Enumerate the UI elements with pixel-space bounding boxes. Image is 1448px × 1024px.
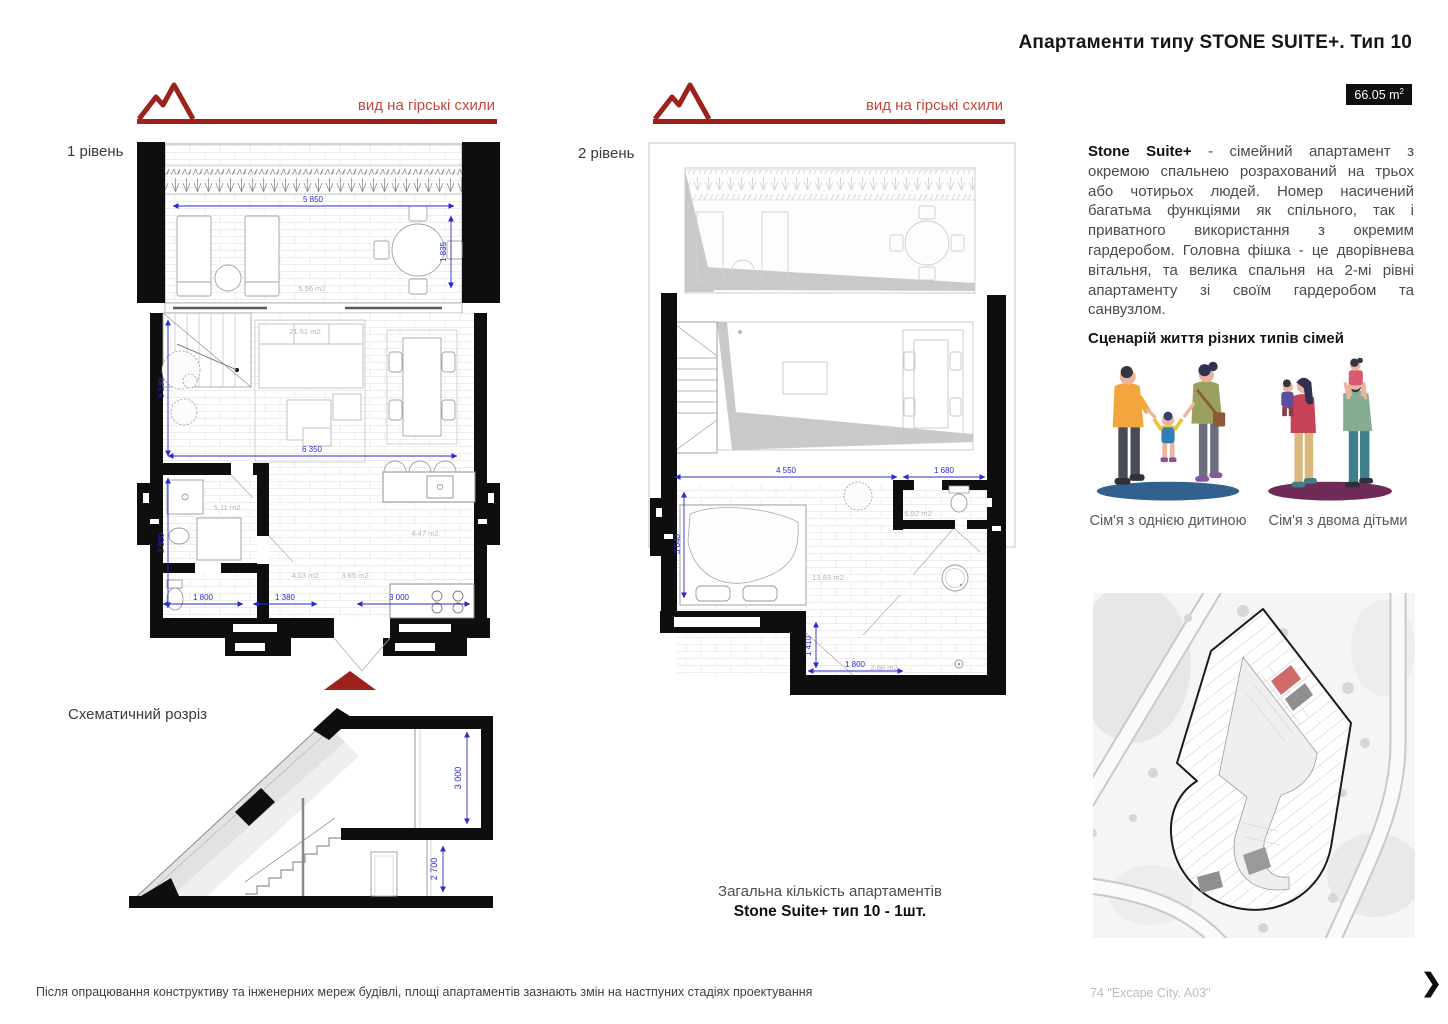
totals: Загальна кількість апартаментів Stone Su… [630,883,1030,921]
level2-label: 2 рівень [578,145,634,162]
dim-bath-height: 2 920 [157,532,166,553]
family-one-child-illustration [1088,358,1248,508]
family-two-children-illustration [1258,358,1403,508]
area-living: 21.61 m2 [289,327,321,336]
view-label: вид на гірські схили [866,97,1003,114]
area-bathroom: 5.11 m2 [214,503,241,512]
dim-kitchen-width: 3 000 [389,593,410,602]
scenario-heading: Сценарій життя різних типів сімей [1088,330,1414,347]
family-illustrations: Сім'я з однією дитиною [1088,358,1418,530]
dim-wc-width: 1 800 [193,593,214,602]
description-body: - сімейний апартамент з окремою спальнею… [1088,143,1414,318]
area-hall: 4.03 m2 [291,571,318,580]
floor-plan-level1: 5 850 1 835 5.56 m2 [137,138,500,673]
totals-line1: Загальна кількість апартаментів [630,883,1030,900]
dim-bedroom-depth: 3 040 [673,533,682,554]
page-title: Апартаменти типу STONE SUITE+. Тип 10 [1018,32,1412,54]
description-lead: Stone Suite+ [1088,143,1192,160]
area-sup: 2 [1400,87,1404,96]
apartment-spec-sheet: Апартаменти типу STONE SUITE+. Тип 10 66… [0,0,1448,1024]
site-map [1093,593,1415,938]
dim-wardrobe-width: 1 680 [934,466,955,475]
family-one-child: Сім'я з однією дитиною [1088,358,1248,530]
next-page-arrow[interactable]: ❯ [1421,968,1442,998]
dim-bath-depth: 1 410 [804,635,813,656]
dim-terrace-width: 5 850 [303,195,324,204]
dim-terrace-depth: 1 835 [439,241,448,262]
family-two-children: Сім'я з двома дітьми [1258,358,1418,530]
view-banner-level1: вид на гірські схили [137,84,497,124]
mountain-icon [651,82,713,122]
dim-hall-width: 1 380 [275,593,296,602]
totals-line2: Stone Suite+ тип 10 - 1шт. [630,903,1030,921]
area-corridor: 3.65 m2 [341,571,368,580]
entrance-marker [324,671,376,690]
level1-label: 1 рівень [67,143,123,160]
dim-bath-width: 1 800 [845,660,866,669]
area-bedroom: 13.83 m2 [812,573,844,582]
section-drawing: 3 000 2 700 [127,700,497,920]
area-kitchen: 4.47 m2 [411,529,438,538]
view-line [653,119,1005,124]
view-banner-level2: вид на гірські схили [653,84,1005,124]
dim-living-width: 6 350 [302,445,323,454]
area-value: 66.05 m [1354,88,1399,102]
floor-plan-level2: 4 550 1 680 13.83 m2 3 040 6.92 m2 2.68 … [648,140,1018,695]
family-caption: Сім'я з двома дітьми [1258,512,1418,530]
dim-lower-height: 2 700 [429,858,439,881]
description: Stone Suite+ - сімейний апартамент з окр… [1088,142,1414,320]
view-line [137,119,497,124]
area-terrace: 5.56 m2 [298,284,325,293]
mountain-icon [135,82,197,122]
area-badge: 66.05 m2 [1346,84,1412,105]
family-caption: Сім'я з однією дитиною [1088,512,1248,530]
view-label: вид на гірські схили [358,97,495,114]
dim-bedroom-width: 4 550 [776,466,797,475]
area-wardrobe: 6.92 m2 [904,509,931,518]
dim-upper-height: 3 000 [453,767,463,790]
footer-disclaimer: Після опрацювання конструктиву та інжене… [36,985,812,999]
footer-page-ref: 74 "Excape City. A03" [1090,986,1211,1000]
dim-living-height: 3 130 [157,377,166,398]
